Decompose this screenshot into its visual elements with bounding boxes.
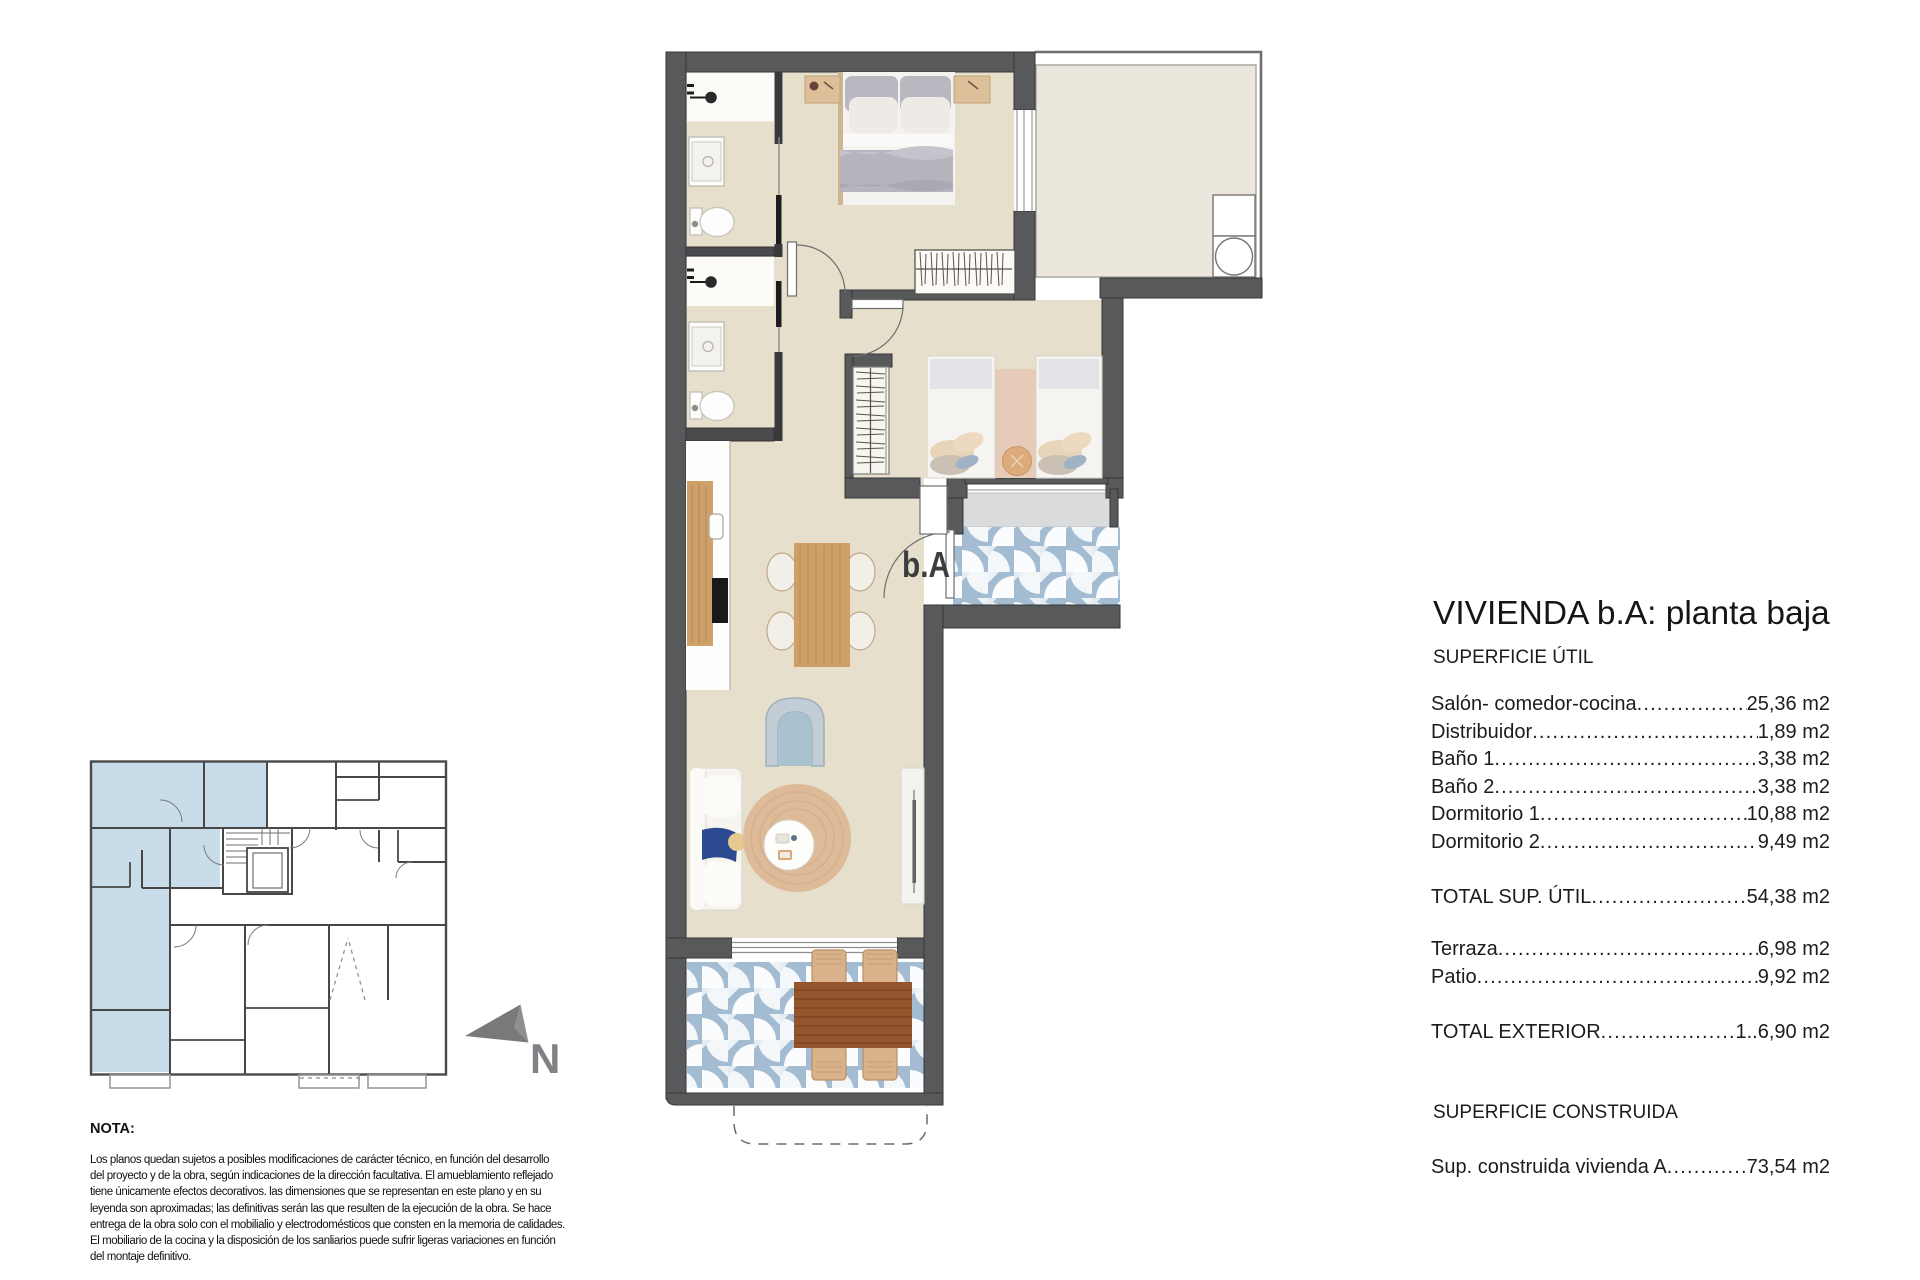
svg-text:b.A: b.A [902,544,950,585]
svg-text:N: N [530,1035,560,1082]
